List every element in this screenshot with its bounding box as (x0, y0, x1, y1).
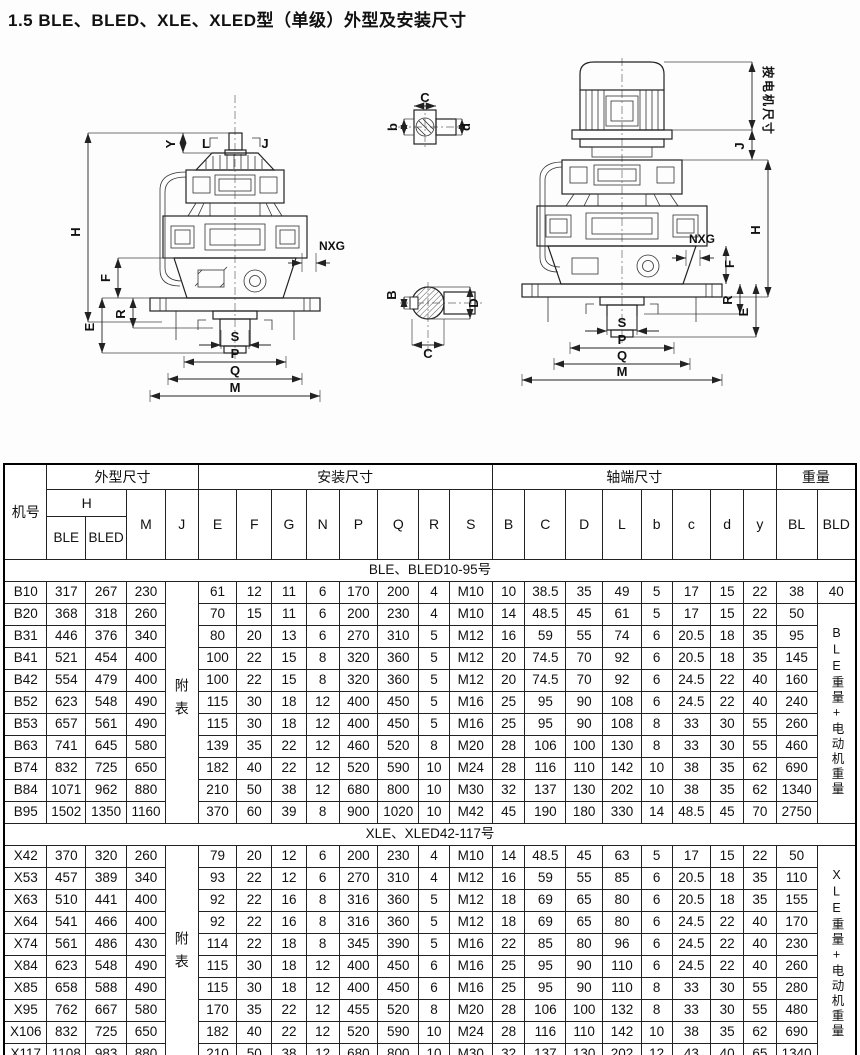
table-row: X5345738934093221262703104M1216595585620… (4, 868, 856, 890)
table-cell: 962 (86, 780, 127, 802)
table-cell: 30 (237, 692, 272, 714)
dim-label-f-right: F (722, 260, 737, 268)
catalog-page: 1.5 BLE、BLED、XLE、XLED型（单级）外型及安装尺寸 (0, 0, 860, 1055)
table-cell: 28 (492, 1022, 525, 1044)
table-cell: 880 (127, 780, 166, 802)
table-cell: 202 (603, 780, 642, 802)
table-cell: 22 (711, 692, 744, 714)
table-cell: 454 (86, 648, 127, 670)
table-cell: 22 (272, 1022, 307, 1044)
table-cell: 18 (711, 648, 744, 670)
table-cell: 8 (641, 978, 672, 1000)
table-cell: 35 (744, 626, 777, 648)
table-cell: 14 (492, 846, 525, 868)
table-cell: 40 (744, 912, 777, 934)
table-cell: 69 (525, 912, 566, 934)
table-cell: 33 (672, 1000, 711, 1022)
table-cell: 22 (237, 912, 272, 934)
table-cell: 20.5 (672, 648, 711, 670)
table-cell: 22 (272, 758, 307, 780)
table-cell: 40 (817, 582, 856, 604)
table-cell: 95 (525, 714, 566, 736)
dim-label-f-left: F (98, 274, 113, 282)
group-header-shaft: 轴端尺寸 (492, 464, 776, 490)
table-cell: 345 (339, 934, 378, 956)
table-cell: 5 (419, 692, 450, 714)
table-cell: 520 (339, 1022, 378, 1044)
table-cell: 20 (492, 670, 525, 692)
table-cell: 360 (378, 648, 419, 670)
table-cell: 90 (566, 978, 603, 1000)
table-row: B2036831826070151162002304M101448.545615… (4, 604, 856, 626)
table-cell: 554 (47, 670, 86, 692)
table-cell: 40 (237, 1022, 272, 1044)
table-cell: 25 (492, 978, 525, 1000)
table-cell: 15 (272, 648, 307, 670)
table-cell: 6 (641, 648, 672, 670)
dim-label-d-section: D (466, 298, 481, 307)
table-cell: 62 (744, 758, 777, 780)
col-header-b: B (492, 490, 525, 560)
dim-label-c-section: C (423, 346, 433, 361)
table-cell: 180 (566, 802, 603, 824)
table-cell: 18 (272, 692, 307, 714)
table-cell: M10 (449, 582, 492, 604)
dim-label-nxg-left: NXG (319, 239, 345, 253)
table-row: B42554479400100221583203605M122074.57092… (4, 670, 856, 692)
col-header-c-small: c (672, 490, 711, 560)
table-cell: XLE重量+电动机重量 (817, 846, 856, 1055)
col-header-r: R (419, 490, 450, 560)
table-cell: 5 (419, 912, 450, 934)
table-cell: 520 (378, 736, 419, 758)
table-cell: 680 (339, 1044, 378, 1055)
table-cell: 623 (47, 956, 86, 978)
table-cell: 55 (744, 978, 777, 1000)
col-header-g: G (272, 490, 307, 560)
table-cell: 43 (672, 1044, 711, 1055)
table-cell: 5 (419, 626, 450, 648)
table-cell: 18 (711, 626, 744, 648)
table-cell: B84 (4, 780, 47, 802)
table-cell: 650 (127, 1022, 166, 1044)
table-cell: 360 (378, 670, 419, 692)
table-cell: 63 (603, 846, 642, 868)
table-cell: M42 (449, 802, 492, 824)
dim-label-l-left: L (202, 136, 210, 151)
table-cell: 880 (127, 1044, 166, 1055)
dim-label-e-left: E (82, 322, 97, 331)
table-cell: 30 (237, 978, 272, 1000)
table-cell: B63 (4, 736, 47, 758)
table-cell: 320 (339, 648, 378, 670)
table-cell: 22 (744, 846, 777, 868)
table-cell: 10 (641, 758, 672, 780)
table-cell: 30 (711, 714, 744, 736)
table-cell: 14 (641, 802, 672, 824)
table-cell: 74.5 (525, 670, 566, 692)
table-cell: 38 (776, 582, 817, 604)
table-cell: 70 (566, 670, 603, 692)
table-cell: 90 (566, 956, 603, 978)
table-cell: 22 (492, 934, 525, 956)
table-cell: X106 (4, 1022, 47, 1044)
col-header-m: M (127, 490, 166, 560)
table-cell: 10 (492, 582, 525, 604)
table-cell: 95 (776, 626, 817, 648)
table-cell: 983 (86, 1044, 127, 1055)
table-row: X74561486430114221883453905M162285809662… (4, 934, 856, 956)
table-cell: 45 (566, 846, 603, 868)
dimension-table: 机号 外型尺寸 安装尺寸 轴端尺寸 重量 H M J E F G N P Q R… (3, 463, 857, 1055)
table-cell: 400 (339, 978, 378, 1000)
table-cell: M12 (449, 670, 492, 692)
table-cell: 110 (776, 868, 817, 890)
table-cell: X64 (4, 912, 47, 934)
table-row: B536575614901153018124004505M16259590108… (4, 714, 856, 736)
table-cell: 20.5 (672, 626, 711, 648)
table-cell: 658 (47, 978, 86, 1000)
table-cell: 55 (744, 714, 777, 736)
table-cell: 115 (198, 956, 237, 978)
table-row: B41521454400100221583203605M122074.57092… (4, 648, 856, 670)
table-cell: 132 (603, 1000, 642, 1022)
table-cell: 200 (378, 582, 419, 604)
table-cell: 8 (306, 890, 339, 912)
table-cell: 360 (378, 890, 419, 912)
table-cell: 260 (776, 956, 817, 978)
table-row: X957626675801703522124555208M20281061001… (4, 1000, 856, 1022)
dim-label-s-left: S (231, 329, 240, 344)
table-cell: 80 (198, 626, 237, 648)
table-cell: 6 (306, 846, 339, 868)
table-cell: 38.5 (525, 582, 566, 604)
table-cell: 110 (603, 956, 642, 978)
table-cell: 230 (378, 604, 419, 626)
table-cell: 6 (641, 670, 672, 692)
table-cell: 55 (744, 736, 777, 758)
dim-label-motor-right: 按电机尺寸 (761, 66, 776, 136)
table-cell: 115 (198, 692, 237, 714)
table-cell: 22 (237, 890, 272, 912)
table-cell: 4 (419, 604, 450, 626)
table-cell: 10 (641, 780, 672, 802)
table-cell: 142 (603, 758, 642, 780)
table-cell: 170 (339, 582, 378, 604)
table-cell: 8 (641, 714, 672, 736)
table-cell: 588 (86, 978, 127, 1000)
table-cell: 28 (492, 736, 525, 758)
table-cell: 5 (641, 604, 672, 626)
table-cell: 260 (127, 604, 166, 626)
table-cell: 85 (603, 868, 642, 890)
table-cell: 741 (47, 736, 86, 758)
weight-note-label: BLE重量+电动机重量 (830, 626, 843, 797)
table-cell: 5 (419, 670, 450, 692)
table-cell: 15 (711, 604, 744, 626)
table-cell: M24 (449, 1022, 492, 1044)
table-cell: M10 (449, 846, 492, 868)
table-cell: 400 (127, 648, 166, 670)
col-header-d-small: d (711, 490, 744, 560)
table-cell: 561 (86, 714, 127, 736)
table-cell: 61 (603, 604, 642, 626)
table-cell: M30 (449, 780, 492, 802)
table-cell: 35 (744, 868, 777, 890)
table-cell: 114 (198, 934, 237, 956)
table-cell: 520 (339, 758, 378, 780)
table-cell: 4 (419, 868, 450, 890)
table-cell: 61 (198, 582, 237, 604)
table-cell: 11 (272, 604, 307, 626)
table-cell: 510 (47, 890, 86, 912)
table-cell: 17 (672, 604, 711, 626)
dim-label-p-left: P (231, 346, 240, 361)
group-header-outline: 外型尺寸 (47, 464, 198, 490)
table-cell: 12 (272, 868, 307, 890)
col-header-e: E (198, 490, 237, 560)
table-cell: 650 (127, 758, 166, 780)
col-header-f: F (237, 490, 272, 560)
table-cell: 18 (492, 890, 525, 912)
dim-label-m-right: M (617, 364, 628, 379)
table-cell: 1071 (47, 780, 86, 802)
table-cell: 35 (711, 758, 744, 780)
section-header-row: XLE、XLED42-117号 (4, 824, 856, 846)
table-cell: 4 (419, 582, 450, 604)
col-header-bld: BLD (817, 490, 856, 560)
table-cell: 762 (47, 1000, 86, 1022)
table-cell: 8 (641, 736, 672, 758)
table-cell: 32 (492, 780, 525, 802)
table-cell: 22 (272, 736, 307, 758)
table-cell: 400 (339, 714, 378, 736)
table-cell: 20 (492, 648, 525, 670)
table-cell: 490 (127, 978, 166, 1000)
table-cell: 725 (86, 1022, 127, 1044)
table-cell: 38 (272, 1044, 307, 1055)
table-cell: 79 (198, 846, 237, 868)
dim-label-y-left: Y (163, 139, 178, 148)
table-cell: 65 (566, 912, 603, 934)
table-cell: 5 (419, 648, 450, 670)
table-cell: 10 (419, 758, 450, 780)
table-cell: 16 (272, 912, 307, 934)
table-cell: B31 (4, 626, 47, 648)
table-cell: B95 (4, 802, 47, 824)
table-cell: 74.5 (525, 648, 566, 670)
table-cell: 6 (306, 626, 339, 648)
table-cell: 155 (776, 890, 817, 912)
table-cell: 20 (237, 846, 272, 868)
table-cell: 74 (603, 626, 642, 648)
table-cell: 28 (492, 758, 525, 780)
table-cell: 8 (641, 1000, 672, 1022)
table-cell: 24.5 (672, 912, 711, 934)
table-cell: M12 (449, 912, 492, 934)
table-cell: 12 (306, 714, 339, 736)
table-cell: 318 (86, 604, 127, 626)
table-cell: 22 (711, 934, 744, 956)
table-cell: 548 (86, 956, 127, 978)
dim-label-j-right: J (732, 142, 747, 149)
table-row: X10683272565018240221252059010M242811611… (4, 1022, 856, 1044)
table-cell: B42 (4, 670, 47, 692)
table-cell: M20 (449, 1000, 492, 1022)
table-cell: 30 (711, 978, 744, 1000)
table-cell: 108 (603, 714, 642, 736)
left-reducer-drawing: H Y L J F R E NXG S (68, 95, 345, 402)
table-cell: 376 (86, 626, 127, 648)
table-cell: 70 (198, 604, 237, 626)
table-cell: 93 (198, 868, 237, 890)
table-cell: 69 (525, 890, 566, 912)
table-cell: 18 (272, 934, 307, 956)
table-row: B9515021350116037060398900102010M4245190… (4, 802, 856, 824)
table-cell: 455 (339, 1000, 378, 1022)
table-cell: 1350 (86, 802, 127, 824)
table-cell: 12 (306, 1044, 339, 1055)
table-cell: M16 (449, 978, 492, 1000)
table-cell: 645 (86, 736, 127, 758)
table-cell: 45 (711, 802, 744, 824)
table-cell: 附表 (165, 846, 198, 1055)
table-cell: 316 (339, 912, 378, 934)
table-cell: 490 (127, 956, 166, 978)
table-cell: 22 (237, 670, 272, 692)
table-cell: 182 (198, 758, 237, 780)
table-cell: 115 (198, 978, 237, 1000)
table-cell: 520 (378, 1000, 419, 1022)
table-cell: 450 (378, 692, 419, 714)
table-cell: 137 (525, 780, 566, 802)
table-cell: 33 (672, 978, 711, 1000)
table-cell: 35 (744, 890, 777, 912)
table-cell: 80 (603, 912, 642, 934)
technical-drawings: H Y L J F R E NXG S (0, 45, 860, 460)
table-cell: M30 (449, 1044, 492, 1055)
table-cell: B53 (4, 714, 47, 736)
table-cell: 80 (566, 934, 603, 956)
table-cell: 541 (47, 912, 86, 934)
dim-label-h-left: H (68, 227, 83, 236)
table-cell: 55 (566, 868, 603, 890)
table-cell: 390 (378, 934, 419, 956)
table-cell: 110 (603, 978, 642, 1000)
table-cell: 400 (339, 692, 378, 714)
table-cell: 1502 (47, 802, 86, 824)
table-cell: 260 (127, 846, 166, 868)
table-cell: 65 (744, 1044, 777, 1055)
dim-label-d-key: d (458, 123, 473, 131)
table-cell: 62 (744, 1022, 777, 1044)
section-title: XLE、XLED42-117号 (4, 824, 856, 846)
section-header-row: BLE、BLED10-95号 (4, 560, 856, 582)
table-cell: 8 (306, 934, 339, 956)
table-cell: 22 (744, 604, 777, 626)
table-cell: 95 (525, 978, 566, 1000)
table-cell: 108 (603, 692, 642, 714)
table-row: B637416455801393522124605208M20281061001… (4, 736, 856, 758)
table-cell: 25 (492, 956, 525, 978)
table-cell: 6 (419, 956, 450, 978)
table-cell: 270 (339, 868, 378, 890)
table-cell: 65 (566, 890, 603, 912)
table-cell: 430 (127, 934, 166, 956)
table-cell: 40 (744, 692, 777, 714)
table-cell: 100 (566, 1000, 603, 1022)
table-cell: 15 (272, 670, 307, 692)
table-cell: 6 (306, 582, 339, 604)
table-cell: 45 (566, 604, 603, 626)
table-cell: 6 (641, 956, 672, 978)
table-cell: 548 (86, 692, 127, 714)
table-cell: 12 (306, 692, 339, 714)
table-cell: 130 (566, 1044, 603, 1055)
table-cell: 28 (492, 1000, 525, 1022)
table-cell: 260 (776, 714, 817, 736)
table-cell: 25 (492, 692, 525, 714)
table-cell: 580 (127, 1000, 166, 1022)
table-cell: X53 (4, 868, 47, 890)
table-cell: 6 (306, 868, 339, 890)
table-cell: 8 (419, 1000, 450, 1022)
table-cell: 6 (641, 692, 672, 714)
table-cell: 8 (419, 736, 450, 758)
table-cell: 800 (378, 780, 419, 802)
table-cell: 389 (86, 868, 127, 890)
table-cell: 400 (127, 912, 166, 934)
table-cell: 5 (419, 890, 450, 912)
col-header-l: L (603, 490, 642, 560)
table-cell: 40 (237, 758, 272, 780)
table-cell: 16 (272, 890, 307, 912)
table-cell: 96 (603, 934, 642, 956)
table-cell: 370 (198, 802, 237, 824)
table-cell: 450 (378, 978, 419, 1000)
table-cell: 92 (603, 648, 642, 670)
table-cell: 190 (525, 802, 566, 824)
table-cell: 446 (47, 626, 86, 648)
table-cell: 1108 (47, 1044, 86, 1055)
table-cell: 490 (127, 714, 166, 736)
dim-label-b-key: b (385, 123, 400, 131)
table-cell: 40 (744, 934, 777, 956)
table-cell: 10 (419, 1022, 450, 1044)
table-cell: 12 (306, 978, 339, 1000)
dim-label-r-right: R (720, 295, 735, 305)
table-cell: 35 (744, 648, 777, 670)
table-cell: 30 (711, 1000, 744, 1022)
table-cell: 5 (419, 714, 450, 736)
table-cell: 1020 (378, 802, 419, 824)
table-cell: 521 (47, 648, 86, 670)
table-cell: 12 (306, 736, 339, 758)
table-cell: 35 (711, 780, 744, 802)
table-cell: 18 (272, 978, 307, 1000)
table-cell: 561 (47, 934, 86, 956)
table-cell: 45 (492, 802, 525, 824)
table-cell: 6 (641, 912, 672, 934)
table-cell: 450 (378, 956, 419, 978)
table-cell: 360 (378, 912, 419, 934)
table-row: X6454146640092221683163605M1218696580624… (4, 912, 856, 934)
table-cell: 12 (306, 1022, 339, 1044)
table-cell: 116 (525, 1022, 566, 1044)
table-cell: 22 (237, 934, 272, 956)
table-cell: 310 (378, 626, 419, 648)
table-cell: 320 (86, 846, 127, 868)
